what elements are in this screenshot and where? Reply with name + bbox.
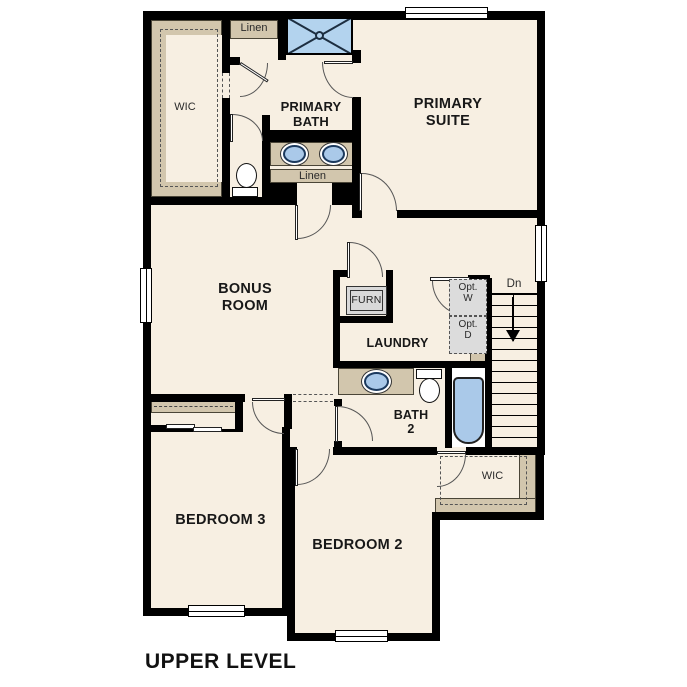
vanity-sink-left [283, 145, 306, 163]
floor-plan: FURN WIC Linen PRIMARY BATH PRIMARY SUIT… [0, 0, 687, 687]
wall-suite-bottom-stub [353, 210, 362, 218]
bathtub [453, 377, 484, 444]
window-bedroom3 [188, 605, 245, 617]
wall-bonus-bottom [143, 394, 245, 402]
door-leaf-bonus [295, 205, 298, 240]
wall-wic2-right [536, 447, 544, 520]
door-leaf-bath2 [335, 406, 338, 442]
shower [286, 17, 353, 55]
window-bedroom2 [335, 630, 388, 642]
bedroom3-closet-rod [154, 406, 233, 407]
wall-bonus-top-b [332, 183, 361, 205]
wall-wic2-bottom [432, 512, 542, 520]
room-label-bedroom3: BEDROOM 3 [158, 512, 283, 529]
window-suite-top [405, 7, 488, 19]
wall-laundry-bottom [333, 361, 490, 368]
stairs-arrow-shaft [512, 297, 514, 331]
opening-hall [293, 394, 333, 402]
opening-wic1 [222, 73, 230, 98]
wall-vanity-top [262, 130, 361, 142]
wall-b3closet-stub [151, 425, 166, 432]
wall-wic1-right-b [222, 98, 230, 197]
room-label-wic-top: WIC [160, 101, 210, 114]
wall-b3door-stub [284, 394, 292, 429]
toilet-bowl-bath2 [419, 378, 440, 403]
wall-b3closet-right [235, 398, 243, 432]
floor-plan-page: { "page": { "title": "UPPER LEVEL" }, "l… [0, 0, 687, 687]
shower-drain-icon [315, 31, 324, 40]
room-label-primary-bath: PRIMARY BATH [266, 100, 356, 130]
plan-title: UPPER LEVEL [145, 650, 445, 674]
vanity-sink-right [322, 145, 345, 163]
door-leaf-primary-bath [324, 61, 353, 64]
wall-hall-bottom-b [333, 447, 437, 455]
label-stairs-dn: Dn [500, 278, 528, 291]
wall-bedroom2-right [432, 512, 440, 641]
room-label-bonus-room: BONUS ROOM [195, 281, 295, 314]
door-leaf-wic2 [437, 451, 466, 454]
wall-bedroom3-right [282, 427, 290, 616]
door-leaf-bedroom3 [252, 398, 285, 401]
label-opt-washer: Opt. W [450, 282, 486, 304]
door-leaf-bedroom2 [295, 449, 298, 486]
room-label-primary-suite: PRIMARY SUITE [398, 96, 498, 129]
wall-bath-suite-a [352, 50, 361, 63]
stairs-arrow-head [506, 330, 520, 342]
room-label-linen-top: Linen [230, 22, 278, 35]
wall-furn-bottom [333, 316, 393, 323]
label-opt-dryer: Opt. D [450, 319, 486, 341]
toilet-tank-primary [232, 187, 258, 197]
wall-linen-stub [225, 57, 240, 65]
door-leaf-primary-suite [359, 173, 362, 211]
window-bonus-left [140, 268, 152, 323]
door-leaf-furnace [347, 242, 350, 278]
toilet-bowl-primary [236, 163, 257, 188]
bypass-door-panel [193, 427, 222, 432]
bypass-door-panel [166, 424, 195, 429]
wall-tub-left [445, 368, 452, 448]
wall-linen-right [278, 11, 286, 60]
window-hall-right [535, 225, 547, 282]
room-label-bedroom2: BEDROOM 2 [295, 537, 420, 554]
wall-bonus-top-a [143, 197, 297, 205]
room-label-laundry: LAUNDRY [355, 336, 440, 350]
bath2-sink [364, 372, 389, 391]
furnace-unit: FURN [346, 286, 387, 315]
room-label-bath2: BATH 2 [385, 408, 437, 437]
door-leaf-wc [230, 114, 233, 142]
wall-hall-bottom-c [466, 447, 545, 455]
room-label-wic-bottom: WIC [470, 470, 515, 483]
room-label-linen-mid: Linen [272, 170, 353, 183]
furnace-label: FURN [351, 295, 381, 306]
wall-suite-bottom [397, 210, 545, 218]
wall-bath2-left-a [334, 399, 342, 406]
